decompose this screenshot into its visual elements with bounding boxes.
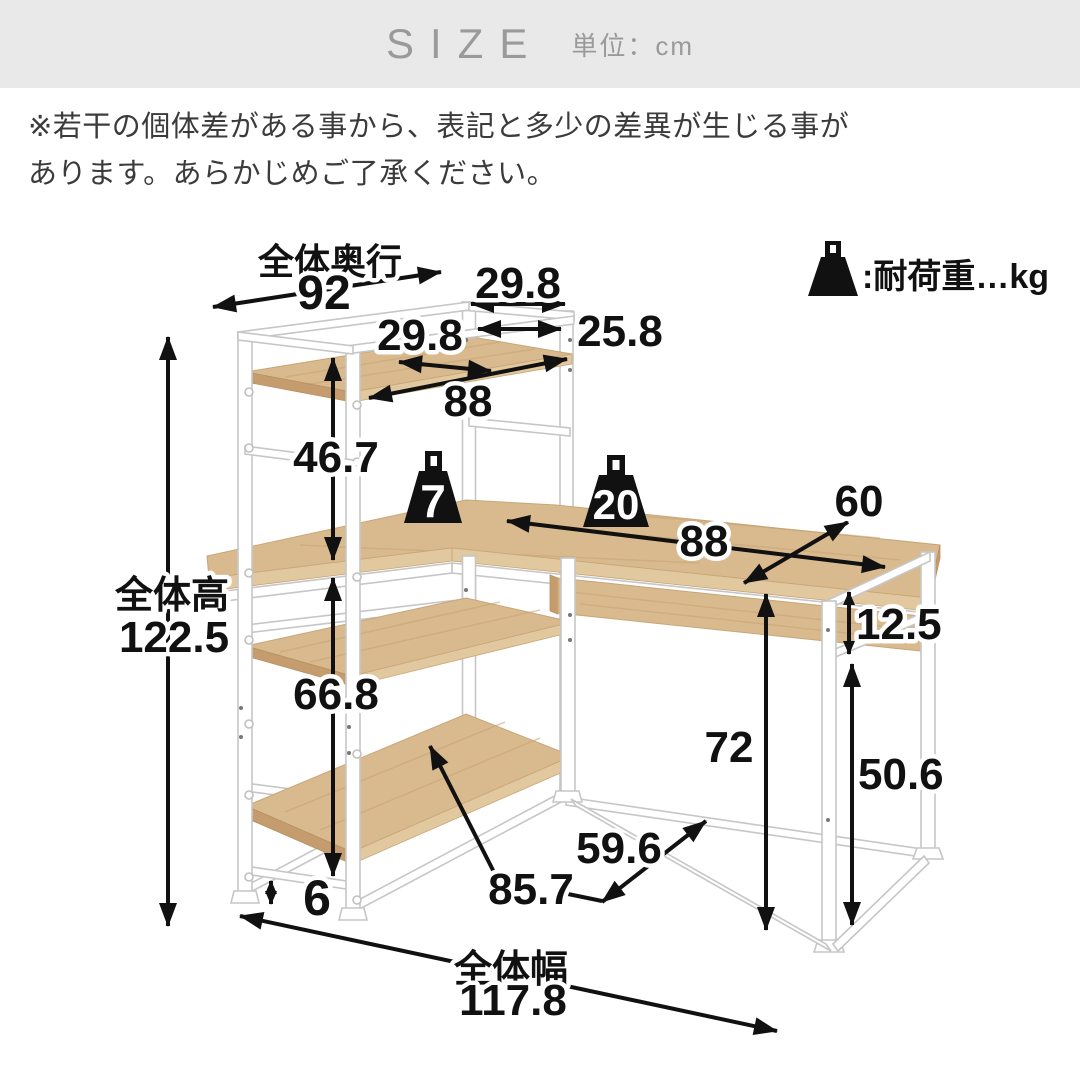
weight-icon-notch [613, 460, 620, 470]
weight-icon-notch [431, 456, 438, 466]
hutch-shelf-depth-value: 29.8 [377, 311, 463, 360]
legend-weight-icon-body [808, 257, 858, 296]
overall-depth-value: 92 [297, 267, 350, 320]
load-legend: :耐荷重…kg [808, 241, 1049, 296]
desk-front-leg [822, 601, 836, 948]
overall-height-value: 122.5 [119, 613, 229, 662]
legend-label: :耐荷重…kg [862, 258, 1049, 296]
hutch-clearance-value: 46.7 [293, 433, 379, 482]
desk-load-value: 20 [593, 481, 640, 528]
apron-left-cap [550, 575, 558, 614]
desk-top-depth-value: 60 [835, 477, 884, 526]
bottom-shelf-length-value: 85.7 [488, 865, 574, 914]
hutch-outer-width-value: 29.8 [475, 259, 561, 308]
shelf-front-post-left [238, 332, 252, 898]
load-icon-hutch: 7 [404, 451, 462, 527]
overall-width-value: 117.8 [459, 976, 567, 1025]
desk-middle-leg-foot [553, 791, 582, 802]
shelf-front-post-right-foot [339, 908, 367, 920]
leg-inner-height-value: 50.6 [858, 750, 944, 799]
shelf-top-cross-rail [238, 332, 353, 354]
hutch-load-value: 7 [420, 475, 446, 527]
hutch-shelf-length-value: 88 [444, 377, 493, 426]
hutch-inner-width-value: 25.8 [577, 307, 663, 356]
floor-diagonal-value: 59.6 [576, 824, 662, 873]
shelf-front-post-right [346, 346, 360, 915]
floor-clearance-value: 6 [303, 870, 331, 926]
bottom-shelf [246, 714, 572, 864]
desk-back-leg-foot [913, 848, 943, 859]
overall-height-label: 全体高 [114, 574, 229, 617]
load-icon-desk: 20 [583, 455, 649, 528]
under-desk-clearance-value: 66.8 [293, 670, 379, 719]
desk-middle-leg [561, 558, 575, 798]
apron-height-value: 12.5 [856, 600, 942, 649]
desk-height-value: 72 [705, 723, 754, 772]
desk-back-leg [921, 552, 935, 855]
desk-top-length-value: 88 [680, 517, 729, 566]
right-frame-bottom-stretcher [833, 856, 929, 951]
legend-weight-icon-notch [830, 245, 836, 253]
shelf-front-post-left-foot [231, 891, 259, 903]
size-diagram: 全体奥行 92 29.8 25.8 29.8 88 46.7 全体高 122.5… [0, 0, 1080, 1080]
